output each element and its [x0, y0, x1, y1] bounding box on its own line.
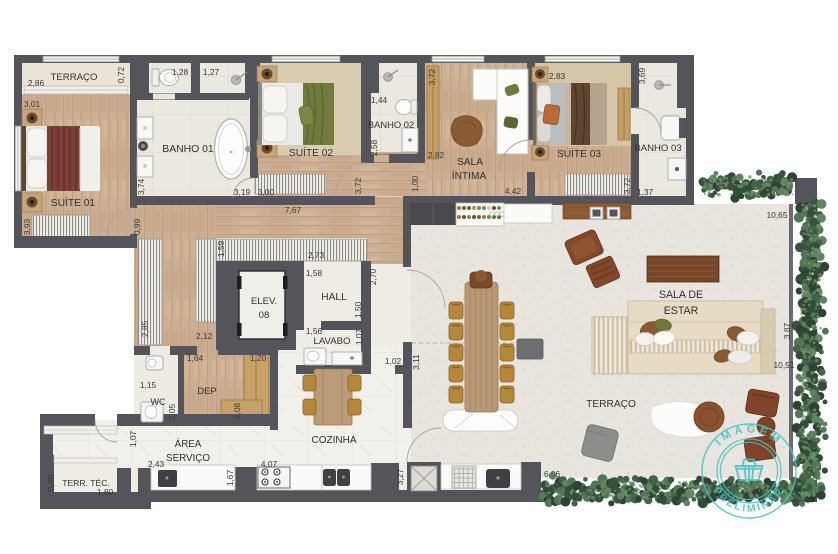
svg-text:SERVIÇO: SERVIÇO — [166, 453, 210, 464]
svg-text:1,56: 1,56 — [306, 326, 323, 336]
svg-text:3,00: 3,00 — [258, 187, 275, 197]
svg-text:ELEV.: ELEV. — [251, 296, 277, 307]
svg-text:1,20: 1,20 — [250, 353, 267, 363]
svg-text:3,87: 3,87 — [782, 323, 792, 340]
svg-text:3,72: 3,72 — [427, 69, 437, 86]
svg-text:COZINHA: COZINHA — [312, 435, 357, 446]
svg-text:3,74: 3,74 — [136, 179, 146, 196]
svg-text:1,50: 1,50 — [353, 302, 363, 319]
svg-text:ÁREA: ÁREA — [175, 439, 202, 450]
svg-text:SALA: SALA — [457, 157, 483, 168]
svg-text:08: 08 — [259, 310, 270, 321]
svg-text:2,73: 2,73 — [308, 250, 325, 260]
svg-text:4,42: 4,42 — [505, 186, 522, 196]
svg-text:1,00: 1,00 — [410, 176, 420, 193]
svg-text:WC: WC — [151, 397, 166, 407]
svg-text:2,58: 2,58 — [369, 140, 379, 157]
svg-text:1,67: 1,67 — [225, 470, 235, 487]
svg-text:2,12: 2,12 — [196, 331, 213, 341]
svg-text:3,72: 3,72 — [622, 178, 632, 195]
svg-text:0,72: 0,72 — [116, 67, 126, 84]
svg-text:SUÍTE 03: SUÍTE 03 — [557, 147, 601, 160]
svg-text:3,72: 3,72 — [353, 178, 363, 195]
svg-text:1,37: 1,37 — [637, 187, 654, 197]
svg-text:BANHO 03: BANHO 03 — [634, 143, 681, 154]
svg-text:DEP: DEP — [197, 386, 217, 397]
svg-text:3,69: 3,69 — [637, 68, 647, 85]
svg-text:SALA DE: SALA DE — [659, 289, 703, 301]
svg-text:3,01: 3,01 — [24, 99, 41, 109]
svg-text:1,64: 1,64 — [187, 353, 204, 363]
svg-text:HALL: HALL — [321, 292, 347, 303]
svg-text:3,19: 3,19 — [234, 187, 251, 197]
svg-text:1,44: 1,44 — [371, 95, 388, 105]
svg-text:7,67: 7,67 — [285, 205, 302, 215]
svg-text:3,93: 3,93 — [22, 219, 32, 236]
svg-text:BANHO 02: BANHO 02 — [368, 119, 414, 130]
svg-text:2,05: 2,05 — [167, 404, 177, 421]
svg-text:0,99: 0,99 — [132, 219, 142, 236]
svg-text:1,58: 1,58 — [306, 268, 323, 278]
svg-text:2,82: 2,82 — [428, 150, 445, 160]
svg-text:1,15: 1,15 — [140, 380, 157, 390]
svg-text:SUÍTE 01: SUÍTE 01 — [51, 196, 95, 209]
svg-text:3,11: 3,11 — [411, 354, 421, 370]
svg-text:1,07: 1,07 — [128, 431, 138, 448]
svg-text:TERRAÇO: TERRAÇO — [586, 399, 636, 410]
svg-text:2,86: 2,86 — [28, 78, 45, 88]
svg-text:4,07: 4,07 — [261, 459, 278, 469]
svg-text:2,08: 2,08 — [232, 403, 242, 420]
svg-text:LAVABO: LAVABO — [314, 336, 351, 347]
svg-text:2,70: 2,70 — [368, 269, 378, 286]
svg-text:2,83: 2,83 — [549, 71, 566, 81]
svg-text:1,28: 1,28 — [172, 67, 189, 77]
svg-text:10,65: 10,65 — [767, 210, 788, 220]
svg-text:1,80: 1,80 — [97, 487, 114, 497]
svg-text:ÍNTIMA: ÍNTIMA — [452, 169, 487, 182]
svg-text:2,43: 2,43 — [148, 459, 165, 469]
svg-text:SUÍTE 02: SUÍTE 02 — [289, 146, 333, 159]
svg-text:3,27: 3,27 — [395, 469, 405, 486]
svg-text:TERRAÇO: TERRAÇO — [51, 72, 98, 83]
svg-text:ESTAR: ESTAR — [664, 305, 699, 317]
svg-text:10,51: 10,51 — [774, 360, 795, 370]
svg-text:2,85: 2,85 — [140, 321, 150, 338]
svg-text:BANHO 01: BANHO 01 — [162, 144, 214, 155]
svg-text:1,07: 1,07 — [354, 329, 364, 346]
svg-text:1,59: 1,59 — [216, 241, 226, 258]
svg-text:1,02: 1,02 — [385, 356, 402, 366]
svg-text:0,60: 0,60 — [46, 475, 56, 492]
svg-text:1,27: 1,27 — [203, 67, 220, 77]
